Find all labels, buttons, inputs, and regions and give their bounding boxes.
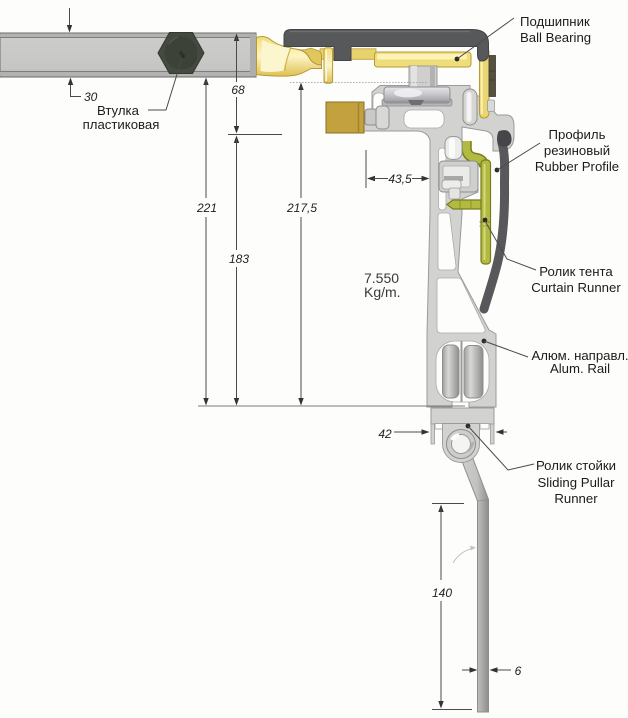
svg-text:Rubber Profile: Rubber Profile (535, 159, 619, 174)
svg-text:43,5: 43,5 (388, 172, 412, 186)
svg-text:Ролик тента: Ролик тента (539, 264, 613, 279)
svg-text:183: 183 (229, 252, 249, 266)
svg-text:Ball Bearing: Ball Bearing (520, 30, 591, 45)
svg-text:Ролик стойки: Ролик стойки (536, 458, 616, 473)
svg-text:217,5: 217,5 (286, 201, 317, 215)
svg-text:6: 6 (515, 664, 522, 678)
svg-text:140: 140 (432, 586, 452, 600)
svg-text:Втулка: Втулка (97, 103, 140, 118)
svg-text:Sliding Pullar: Sliding Pullar (538, 475, 616, 490)
svg-text:пластиковая: пластиковая (83, 117, 160, 132)
svg-text:42: 42 (378, 427, 392, 441)
svg-text:221: 221 (196, 201, 217, 215)
svg-text:68: 68 (231, 83, 245, 97)
svg-text:Подшипник: Подшипник (520, 14, 590, 29)
svg-text:Runner: Runner (554, 491, 598, 506)
svg-text:Kg/m.: Kg/m. (364, 284, 401, 300)
svg-text:резиновый: резиновый (544, 143, 610, 158)
svg-text:Curtain Runner: Curtain Runner (531, 280, 621, 295)
svg-text:Alum. Rail: Alum. Rail (550, 361, 610, 376)
svg-text:Профиль: Профиль (549, 127, 606, 142)
svg-text:30: 30 (84, 90, 98, 104)
